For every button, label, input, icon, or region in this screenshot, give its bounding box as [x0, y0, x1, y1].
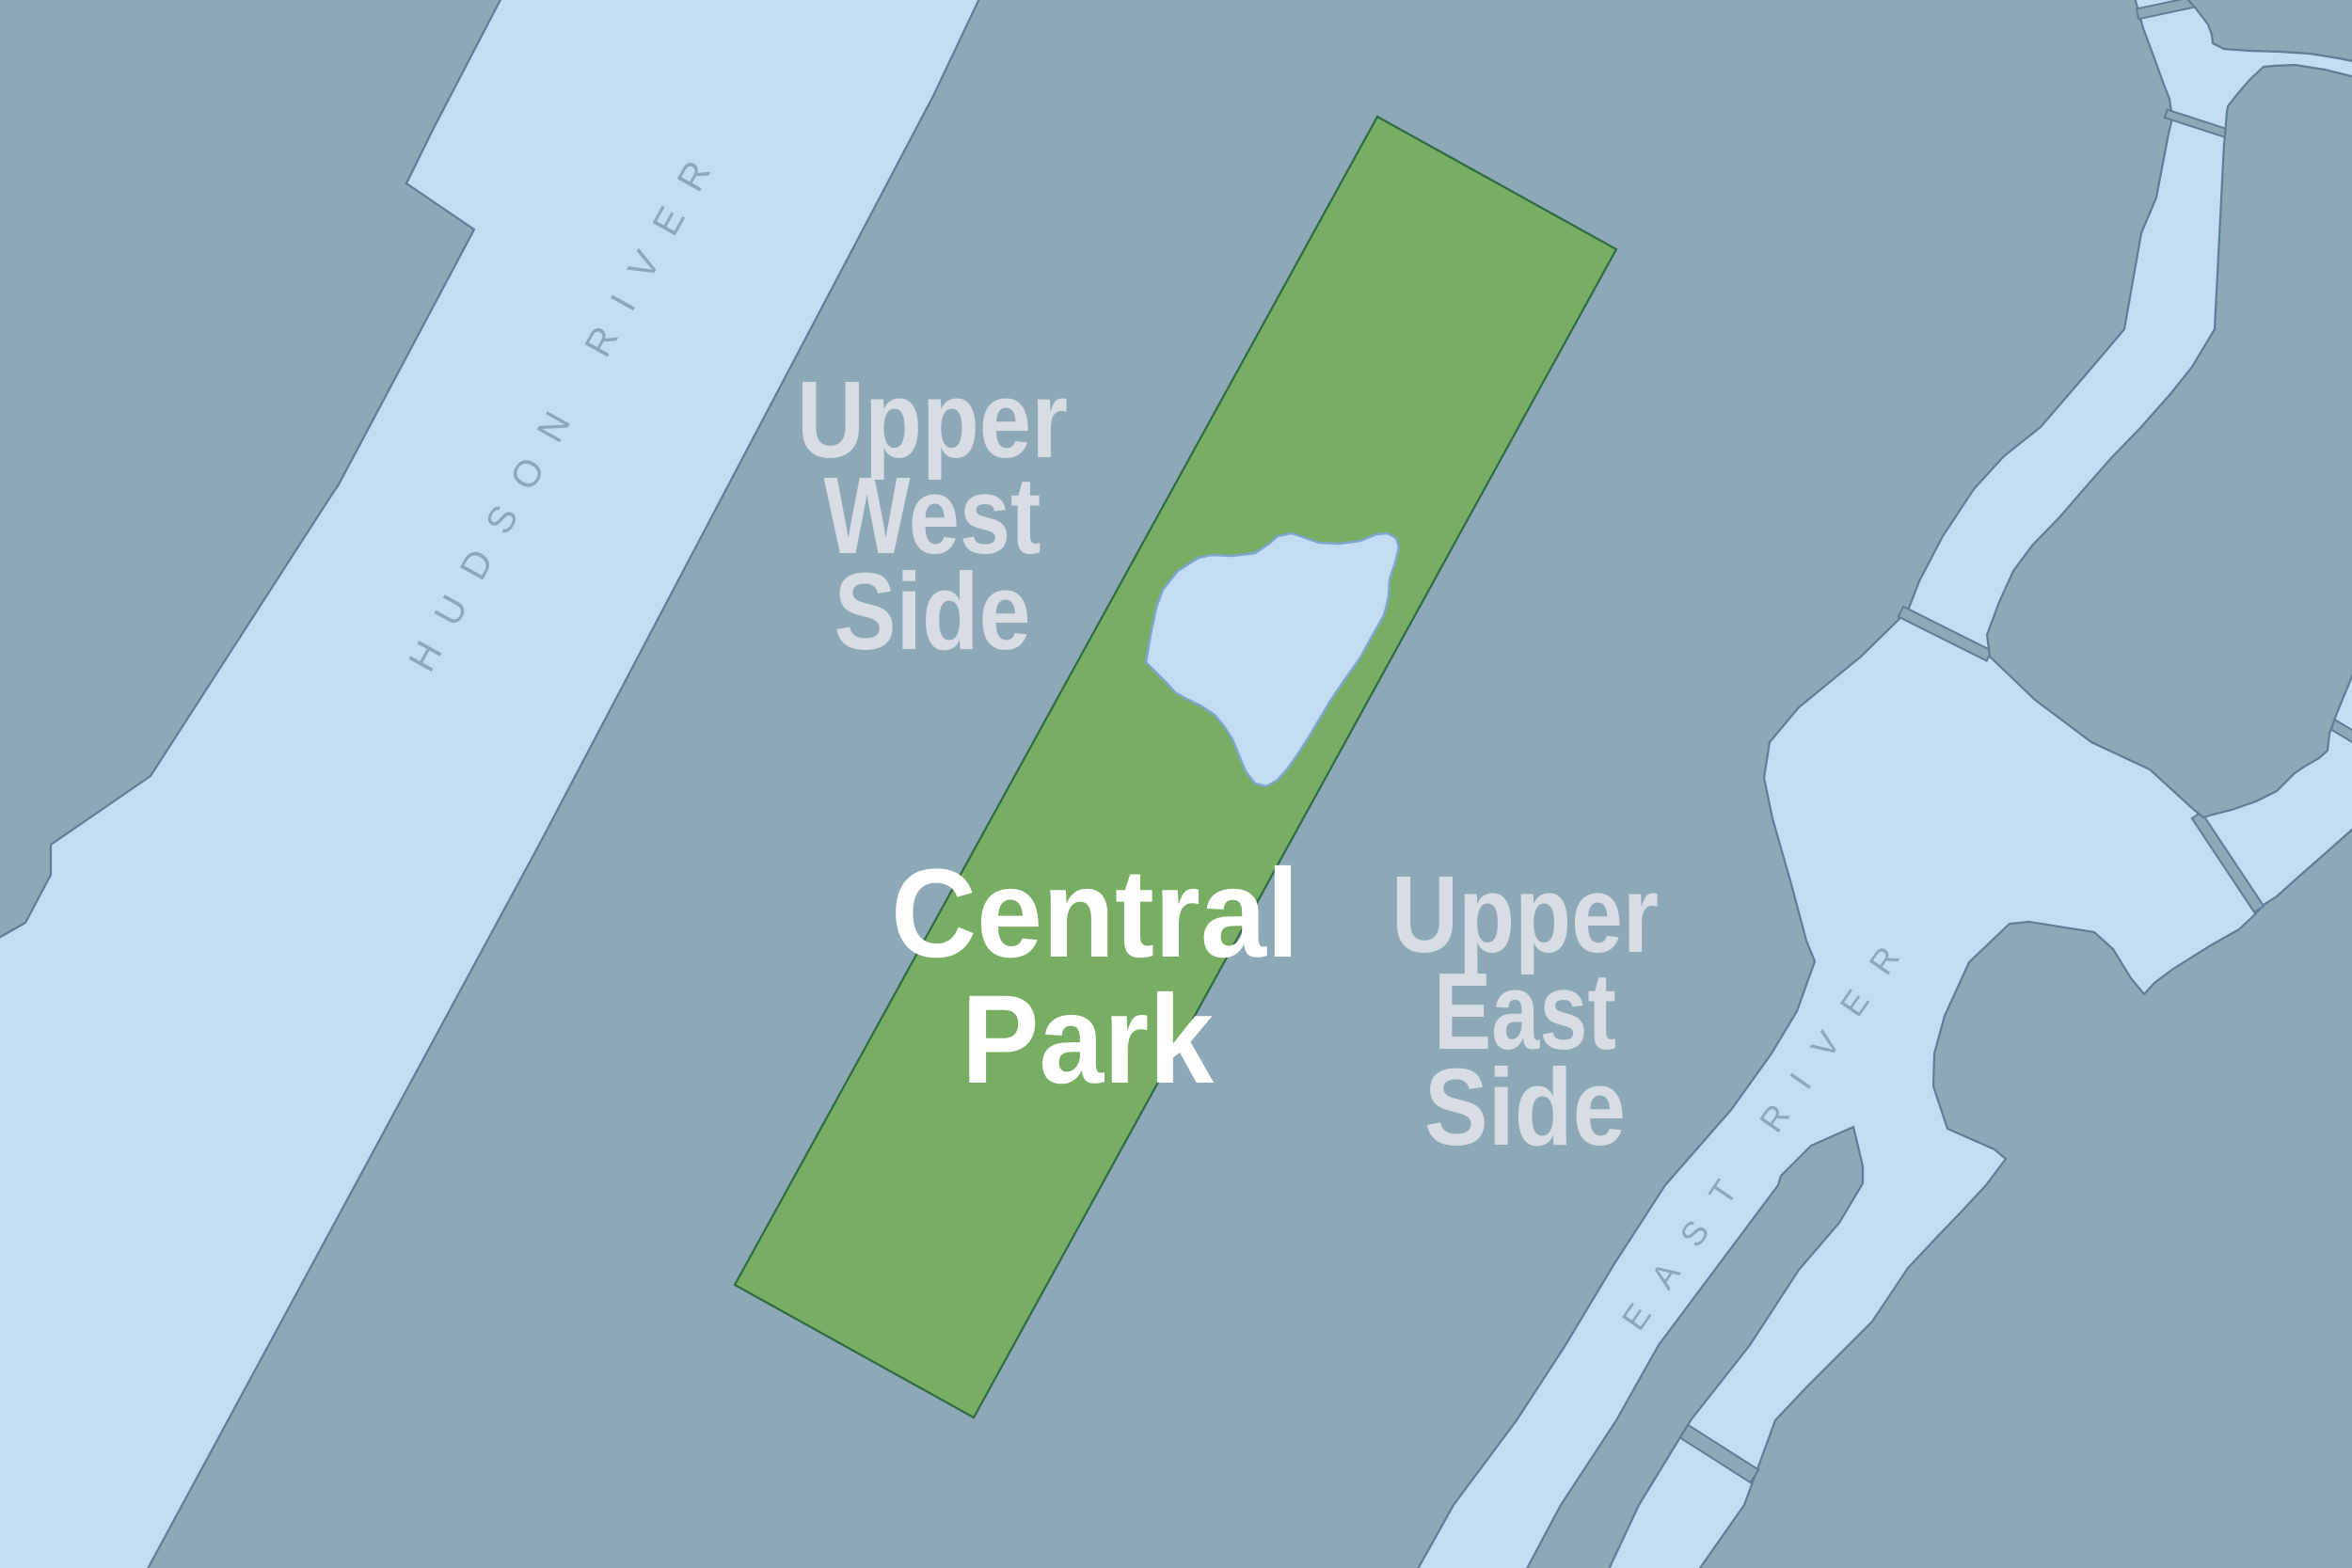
- svg-text:Side: Side: [1424, 1046, 1626, 1168]
- svg-text:Park: Park: [961, 970, 1214, 1110]
- svg-text:Central: Central: [891, 844, 1299, 984]
- svg-text:Side: Side: [834, 550, 1031, 673]
